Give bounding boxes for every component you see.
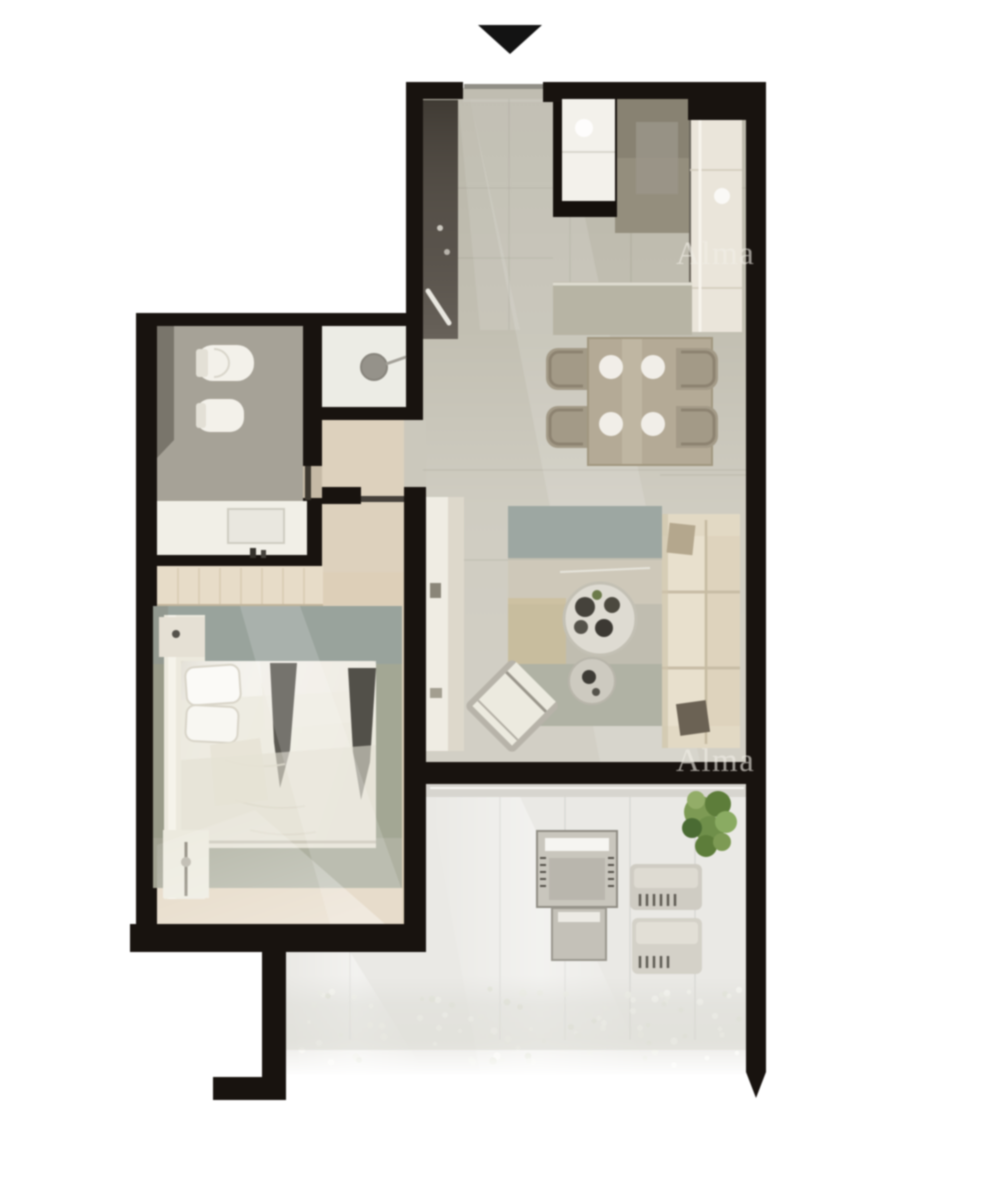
svg-text:Alma: Alma bbox=[676, 743, 755, 779]
svg-text:Alma: Alma bbox=[676, 236, 755, 272]
